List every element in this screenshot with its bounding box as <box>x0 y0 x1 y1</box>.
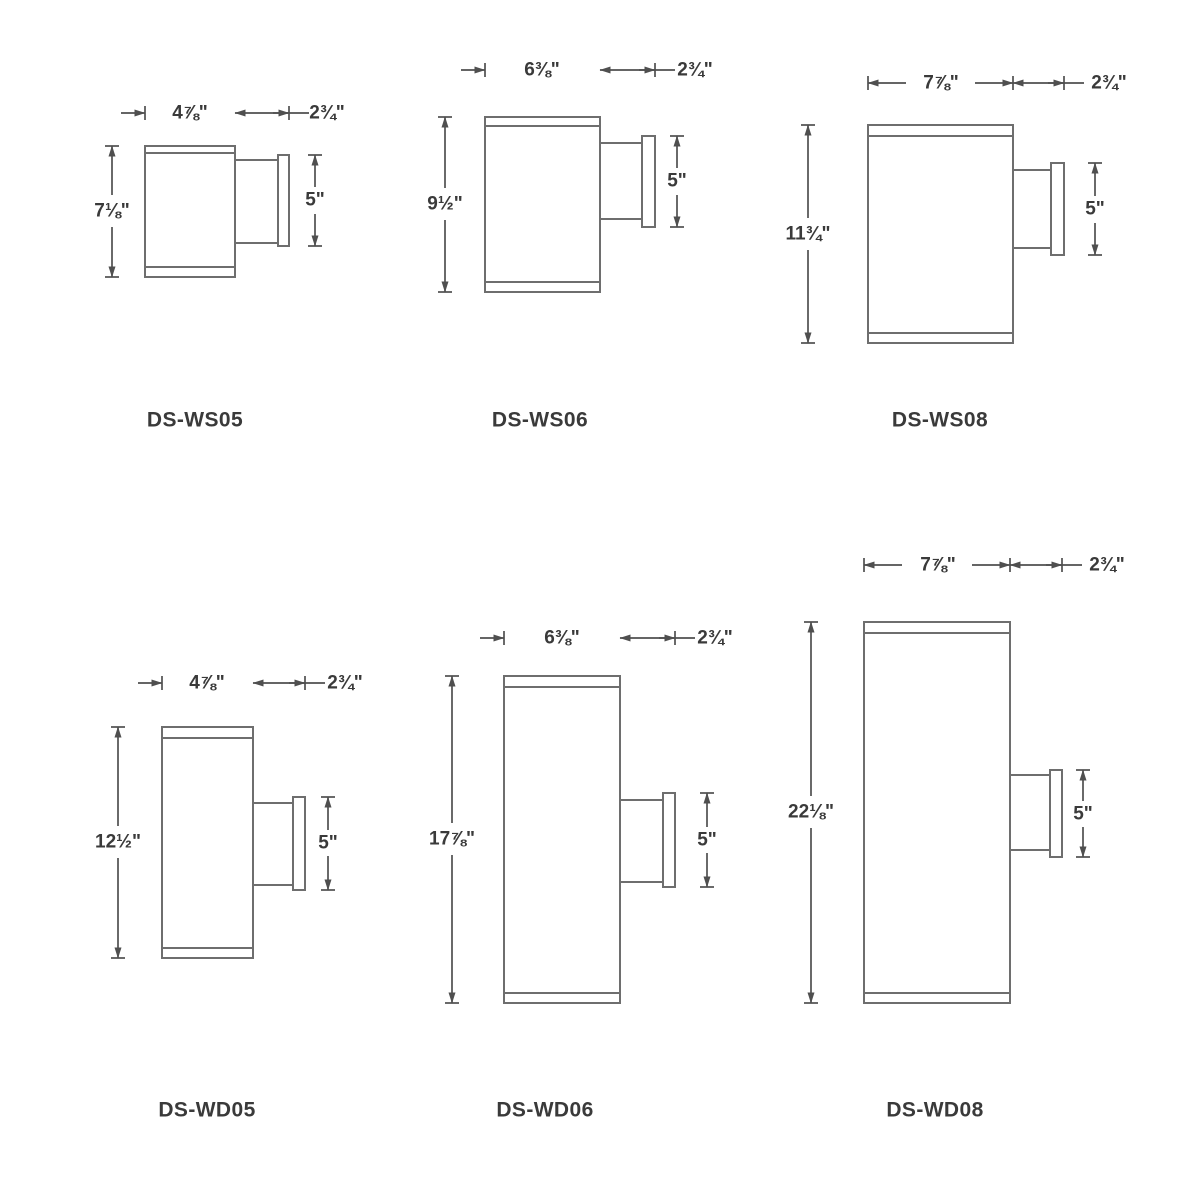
height-dimension-label: 11¾" <box>786 224 831 245</box>
height-dimension-label: 12½" <box>95 832 141 853</box>
projection-dimension-label: 2¾" <box>1089 555 1124 576</box>
height-dimension-label: 7⅛" <box>94 201 129 222</box>
mounting-arm <box>253 803 293 885</box>
backplate-dimension: 5" <box>1085 163 1105 255</box>
height-dimension-label: 22⅛" <box>788 802 834 823</box>
height-dimension: 22⅛" <box>788 622 834 1003</box>
width-dimension-label: 6⅜" <box>544 628 579 649</box>
height-dimension: 17⅞" <box>429 676 475 1003</box>
backplate-dimension: 5" <box>318 797 338 890</box>
width-dimension-label: 7⅞" <box>923 73 958 94</box>
drawing-ds-ws05: 4⅞" 2¾" 7⅛" 5" DS-WS05 <box>60 60 380 440</box>
model-label: DS-WS05 <box>147 409 243 432</box>
model-label: DS-WS08 <box>892 409 988 432</box>
width-dimension: 6⅜" <box>480 628 580 649</box>
fixture-body <box>485 117 600 292</box>
width-dimension-label: 4⅞" <box>189 673 224 694</box>
height-dimension-label: 17⅞" <box>429 829 475 850</box>
backplate-dimension-label: 5" <box>318 833 338 854</box>
backplate-dimension-label: 5" <box>697 830 717 851</box>
width-dimension-label: 7⅞" <box>920 555 955 576</box>
projection-dimension: 2¾" <box>235 103 345 124</box>
drawing-ds-wd06: 6⅜" 2¾" 17⅞" 5" DS-WD06 <box>410 600 760 1160</box>
backplate-dimension: 5" <box>1073 770 1093 857</box>
mounting-arm <box>600 143 642 219</box>
projection-dimension: 2¾" <box>253 673 363 694</box>
model-label: DS-WS06 <box>492 409 588 432</box>
projection-dimension: 2¾" <box>1010 555 1125 576</box>
fixture-body <box>864 622 1010 1003</box>
projection-dimension-label: 2¾" <box>697 628 732 649</box>
mounting-arm <box>1010 775 1050 850</box>
fixture-body <box>162 727 253 958</box>
drawing-ds-ws08: 7⅞" 2¾" 11¾" 5" DS-WS08 <box>760 40 1160 440</box>
backplate-dimension: 5" <box>305 155 325 246</box>
backplate-dimension-label: 5" <box>305 190 325 211</box>
wall-backplate <box>663 793 675 887</box>
wall-backplate <box>642 136 655 227</box>
projection-dimension-label: 2¾" <box>677 60 712 81</box>
projection-dimension-label: 2¾" <box>327 673 362 694</box>
model-label: DS-WD06 <box>496 1099 593 1122</box>
drawing-ds-wd05: 4⅞" 2¾" 12½" 5" DS-WD05 <box>60 640 400 1160</box>
backplate-dimension: 5" <box>697 793 717 887</box>
height-dimension: 11¾" <box>786 125 831 343</box>
projection-dimension-label: 2¾" <box>309 103 344 124</box>
mounting-arm <box>1013 170 1051 248</box>
backplate-dimension-label: 5" <box>1085 199 1105 220</box>
width-dimension: 6⅜" <box>461 60 560 81</box>
backplate-dimension: 5" <box>667 136 687 227</box>
height-dimension-label: 9½" <box>427 194 462 215</box>
height-dimension: 9½" <box>427 117 462 292</box>
drawing-ds-ws06: 6⅜" 2¾" 9½" 5" DS-WS06 <box>400 30 740 440</box>
wall-backplate <box>1051 163 1064 255</box>
width-dimension: 4⅞" <box>138 673 225 694</box>
width-dimension: 7⅞" <box>864 555 1010 576</box>
wall-backplate <box>293 797 305 890</box>
width-dimension: 7⅞" <box>868 73 1013 94</box>
backplate-dimension-label: 5" <box>667 171 687 192</box>
fixture-body <box>504 676 620 1003</box>
width-dimension-label: 4⅞" <box>172 103 207 124</box>
drawing-ds-wd08: 7⅞" 2¾" 22⅛" 5" DS-WD08 <box>780 530 1180 1160</box>
height-dimension: 12½" <box>95 727 141 958</box>
width-dimension: 4⅞" <box>121 103 208 124</box>
wall-backplate <box>1050 770 1062 857</box>
model-label: DS-WD05 <box>158 1099 255 1122</box>
width-dimension-label: 6⅜" <box>524 60 559 81</box>
projection-dimension: 2¾" <box>600 60 713 81</box>
model-label: DS-WD08 <box>886 1099 983 1122</box>
projection-dimension: 2¾" <box>620 628 733 649</box>
mounting-arm <box>620 800 663 882</box>
backplate-dimension-label: 5" <box>1073 804 1093 825</box>
dimension-sheet: 4⅞" 2¾" 7⅛" 5" DS-WS05 <box>0 0 1200 1200</box>
projection-dimension: 2¾" <box>1013 73 1127 94</box>
height-dimension: 7⅛" <box>94 146 129 277</box>
mounting-arm <box>235 160 278 243</box>
wall-backplate <box>278 155 289 246</box>
fixture-body <box>868 125 1013 343</box>
projection-dimension-label: 2¾" <box>1091 73 1126 94</box>
fixture-body <box>145 146 235 277</box>
